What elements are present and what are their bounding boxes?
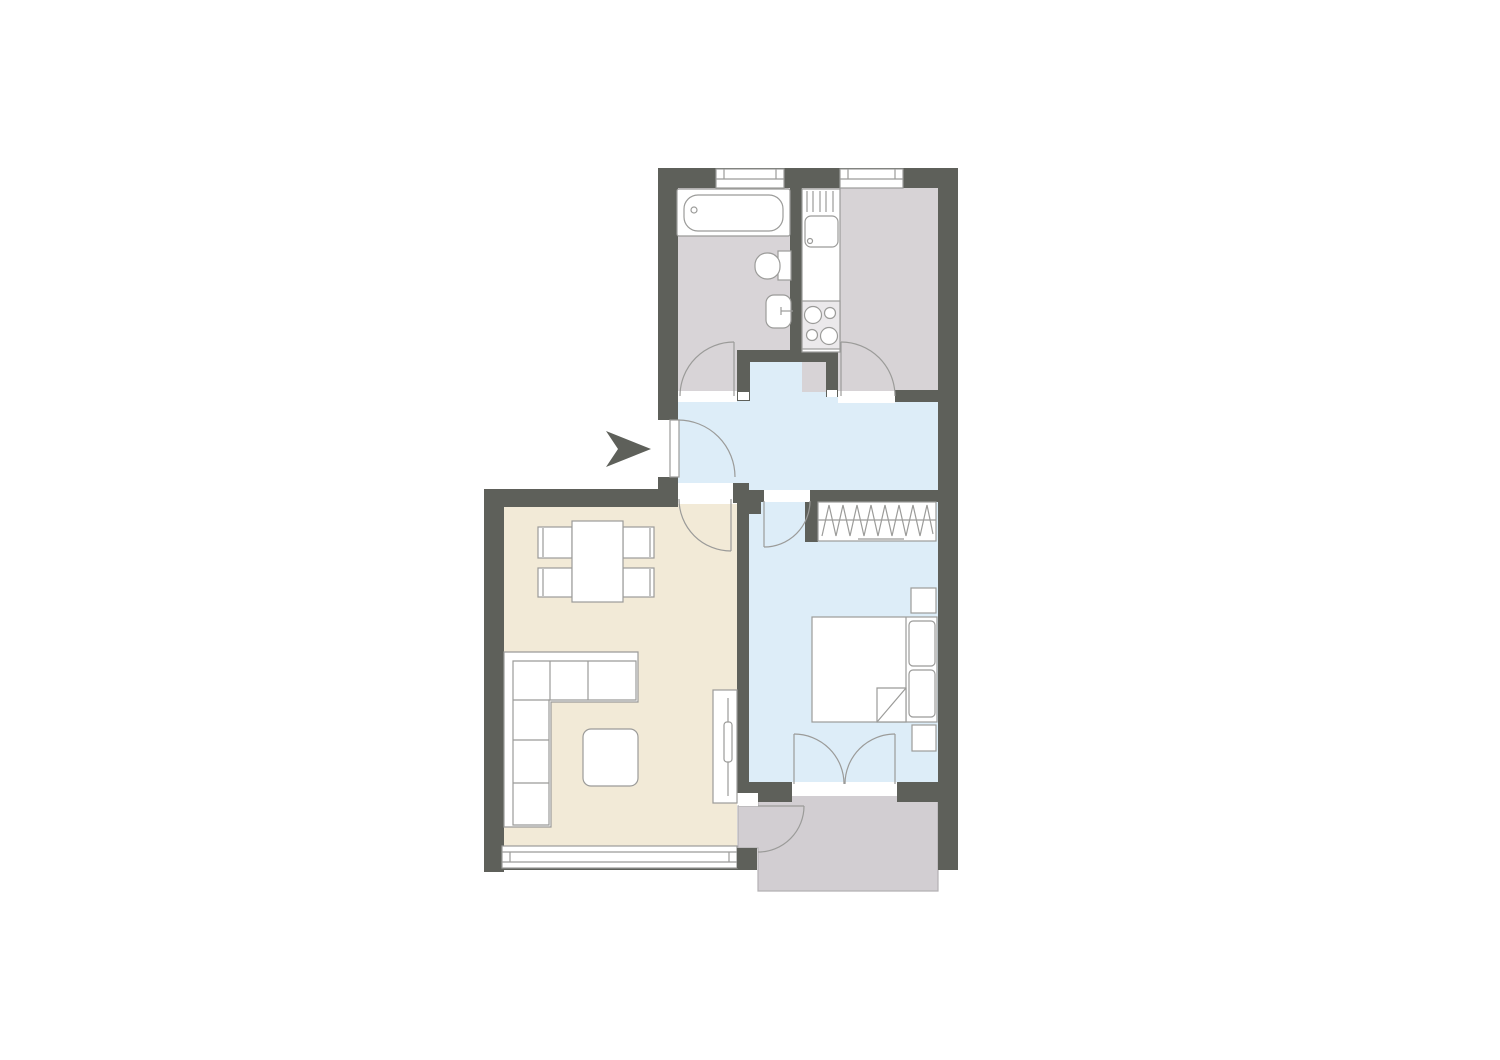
wall-bath-kitchen-divider [790, 188, 802, 355]
dining-chair-4 [623, 568, 654, 597]
window-living [502, 846, 737, 868]
wall-living-bottom-post [737, 848, 757, 868]
floor-plan-canvas [0, 0, 1500, 1060]
stove-burner-2 [825, 308, 836, 319]
entrance-door-leaf [670, 420, 679, 477]
threshold-bathroom [678, 391, 737, 402]
wall-living-top [484, 489, 660, 507]
kitchen-sink-tap [808, 239, 813, 244]
wall-left-upper [658, 188, 678, 420]
entrance-arrow-icon [606, 431, 651, 467]
nightstand-top [911, 588, 936, 613]
jamb-cap-left [738, 392, 749, 400]
wall-wardrobe-post [805, 502, 818, 542]
wall-kitchen-bottom [895, 390, 938, 402]
pillow-2 [909, 670, 935, 717]
wall-living-door-right [733, 483, 749, 503]
threshold-balcony-door [739, 793, 758, 806]
bathtub-drain [691, 207, 697, 213]
nightstand-bottom [912, 725, 936, 751]
coffee-table [583, 729, 638, 786]
radiator-valve [724, 722, 732, 762]
threshold-french-door [792, 782, 897, 796]
dining-table [572, 521, 623, 602]
wall-top [658, 168, 958, 188]
wall-bedroom-hinge-nub [747, 502, 761, 514]
toilet-bowl [755, 253, 780, 279]
stove-burner-1 [805, 307, 822, 324]
wall-bedroom-bottom-right [897, 782, 938, 802]
wall-living-bedroom-divider [737, 495, 749, 793]
stove-burner-3 [807, 330, 818, 341]
threshold-bedroom [764, 490, 810, 502]
balcony-floor [738, 793, 938, 891]
threshold-living [678, 483, 733, 503]
bathtub-basin [684, 195, 783, 231]
pillow-1 [909, 621, 935, 666]
jamb-cap-right [827, 390, 837, 397]
stove-burner-4 [821, 328, 838, 345]
wall-bedroom-top-left [747, 490, 764, 502]
wall-hall-leg-right [826, 350, 838, 397]
wall-right [938, 188, 958, 870]
floor-plan-page [0, 0, 1500, 1060]
threshold-kitchen [838, 391, 895, 403]
wall-bedroom-top-right [810, 490, 938, 502]
bathroom-door-bay-floor [678, 350, 737, 392]
dining-chair-3 [623, 527, 654, 558]
wall-left-mid [658, 477, 678, 507]
wall-living-left [484, 503, 504, 872]
